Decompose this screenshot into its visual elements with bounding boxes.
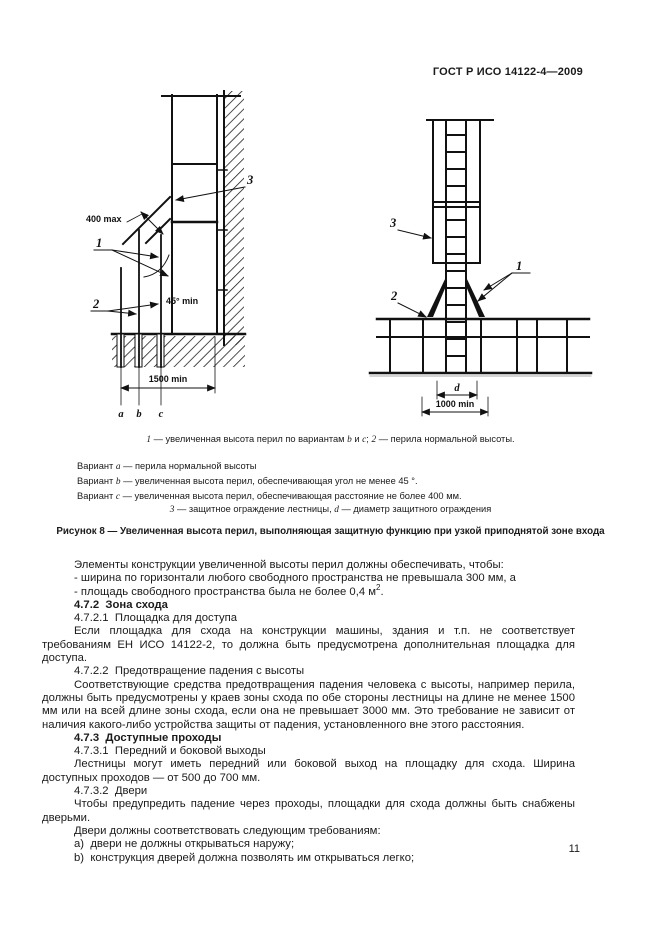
callout-3-right: 3 <box>389 216 396 230</box>
angle-45-label: 45° min <box>166 296 198 306</box>
variant-a-text: — перила нормальной высоты <box>121 461 257 471</box>
heading-4-7-2: 4.7.2 Зона схода <box>42 599 575 612</box>
document-number: ГОСТ Р ИСО 14122-4—2009 <box>0 66 583 78</box>
ladder-side-view: 400 max 45° min 1 2 3 <box>86 91 253 420</box>
heading-4-7-3-1: 4.7.3.1 Передний и боковой выходы <box>42 745 575 758</box>
dimension-1000-min: 1000 min <box>422 397 488 416</box>
variant-line-b: Вариант b — увеличенная высота перил, об… <box>77 474 462 489</box>
list-item-text: - площадь свободного пространства была н… <box>74 586 376 598</box>
paragraph: Двери должны соответствовать следующим т… <box>42 825 575 838</box>
ladder-rungs <box>446 120 466 373</box>
right-callouts: 3 1 2 <box>389 216 530 317</box>
dim-1000-min-label: 1000 min <box>436 399 475 409</box>
callout-2: 2 <box>92 297 99 311</box>
heading-4-7-3: 4.7.3 Доступные проходы <box>42 732 575 745</box>
floor-hatch <box>112 334 245 367</box>
list-item: - ширина по горизонтали любого свободног… <box>42 572 575 585</box>
variant-letter-b: b <box>136 409 141 420</box>
list-item-period: . <box>381 586 384 598</box>
heading-4-7-2-1: 4.7.2.1 Площадка для доступа <box>42 612 575 625</box>
note1-text-2: и <box>352 434 362 444</box>
figure-caption: Рисунок 8 — Увеличенная высота перил, вы… <box>10 526 651 537</box>
figure-note-3: 3 — защитное ограждение лестницы, d — ди… <box>20 504 641 515</box>
dim-d-label: d <box>454 383 460 394</box>
paragraph: Соответствующие средства предотвращения … <box>42 679 575 732</box>
figure-8-drawings: 400 max 45° min 1 2 3 <box>0 85 661 435</box>
variant-c-prefix: Вариант <box>77 491 116 501</box>
variant-letter-a: a <box>118 409 123 420</box>
handrail-flares <box>427 277 485 317</box>
variant-b-prefix: Вариант <box>77 476 116 486</box>
wall-hatch <box>224 91 244 345</box>
callout-3: 3 <box>246 173 253 187</box>
paragraph: Если площадка для схода на конструкции м… <box>42 625 575 665</box>
ladder-front-view: 3 1 2 d 1000 min <box>370 120 591 416</box>
variant-c-text: — увеличенная высота перил, обеспечивающ… <box>120 491 462 501</box>
dimension-d: d <box>437 381 477 399</box>
note1-text-4: — перила нормальной высоты. <box>376 434 514 444</box>
variant-list: Вариант a — перила нормальной высоты Вар… <box>77 459 462 504</box>
body-text: Элементы конструкции увеличенной высоты … <box>42 559 575 865</box>
note3-text-2: — диаметр защитного ограждения <box>339 504 491 514</box>
variant-b-text: — увеличенная высота перил, обеспечивающ… <box>121 476 418 486</box>
figure-note-1: 1 — увеличенная высота перил по варианта… <box>20 434 641 445</box>
note1-text-1: — увеличенная высота перил по вариантам <box>151 434 347 444</box>
page-number: 11 <box>0 843 580 855</box>
paragraph: Лестницы могут иметь передний или боково… <box>42 758 575 785</box>
variant-a-prefix: Вариант <box>77 461 116 471</box>
paragraph: Элементы конструкции увеличенной высоты … <box>42 559 575 572</box>
platform-guardrail <box>370 319 591 376</box>
variant-line-c: Вариант c — увеличенная высота перил, об… <box>77 489 462 504</box>
variant-letter-c: c <box>159 409 164 420</box>
variant-line-a: Вариант a — перила нормальной высоты <box>77 459 462 474</box>
callout-1-right: 1 <box>516 259 522 273</box>
dim-400-max-label: 400 max <box>86 214 122 224</box>
variant-letters: a b c <box>118 409 163 420</box>
heading-4-7-3-2: 4.7.3.2 Двери <box>42 785 575 798</box>
dim-1500-min-label: 1500 min <box>149 374 188 384</box>
heading-4-7-2-2: 4.7.2.2 Предотвращение падения с высоты <box>42 665 575 678</box>
document-page: ГОСТ Р ИСО 14122-4—2009 <box>0 0 661 936</box>
callout-1: 1 <box>96 236 102 250</box>
callout-2-right: 2 <box>390 289 397 303</box>
note3-text-1: — защитное ограждение лестницы, <box>174 504 334 514</box>
paragraph: Чтобы предупредить падение через проходы… <box>42 798 575 825</box>
list-item: - площадь свободного пространства была н… <box>42 586 575 599</box>
ladder-cage <box>427 120 493 263</box>
